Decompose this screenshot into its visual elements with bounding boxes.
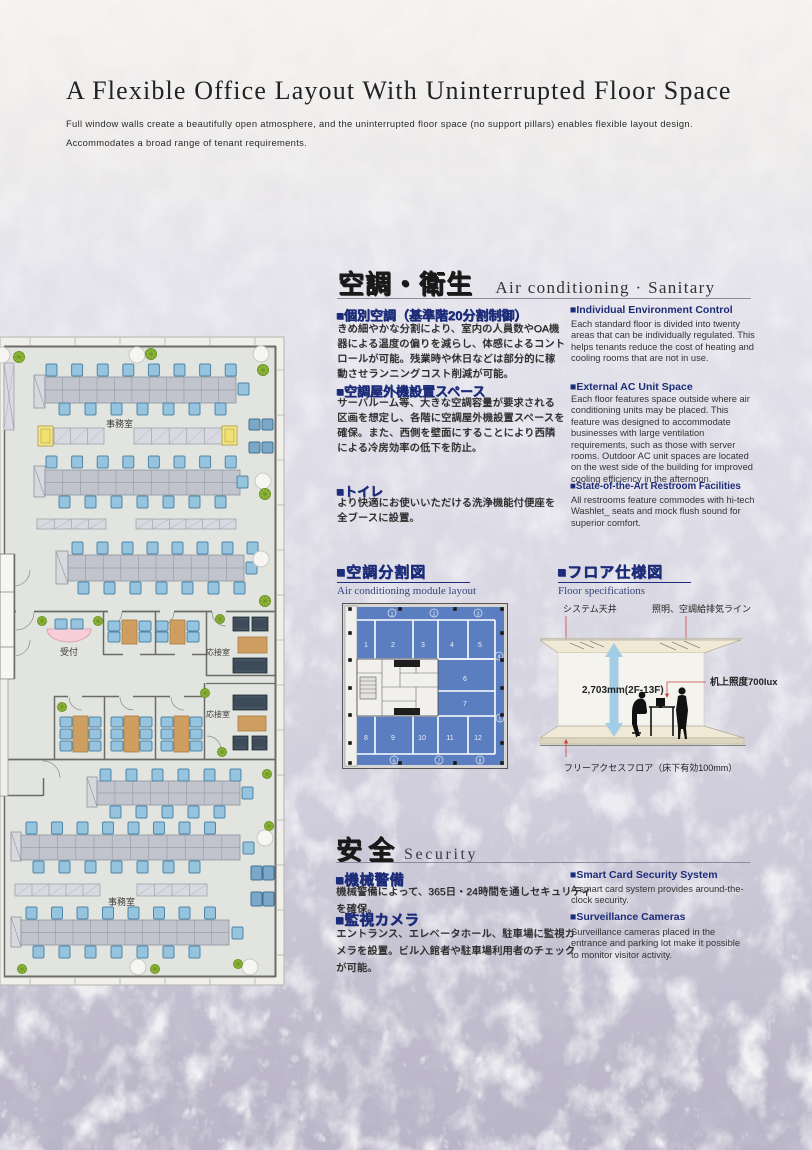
svg-text:机上照度700lux: 机上照度700lux: [710, 676, 778, 688]
svg-text:応接室: 応接室: [206, 647, 230, 657]
svg-text:事務室: 事務室: [108, 896, 135, 907]
svg-text:フリーアクセスフロア（床下有効100mm）: フリーアクセスフロア（床下有効100mm）: [564, 762, 737, 773]
svg-text:2,703mm(2F-13F): 2,703mm(2F-13F): [582, 685, 664, 696]
svg-text:システム天井: システム天井: [563, 603, 617, 614]
svg-text:6: 6: [463, 676, 467, 683]
svg-text:5: 5: [478, 642, 482, 649]
svg-text:7: 7: [437, 758, 440, 764]
svg-text:受付: 受付: [60, 646, 78, 657]
svg-text:2: 2: [432, 611, 435, 617]
svg-text:3: 3: [421, 642, 425, 649]
svg-text:11: 11: [446, 735, 453, 742]
svg-text:9: 9: [391, 735, 395, 742]
svg-text:8: 8: [478, 758, 481, 764]
svg-text:4: 4: [450, 642, 454, 649]
svg-text:事務室: 事務室: [106, 418, 133, 429]
svg-text:12: 12: [474, 735, 482, 742]
svg-text:6: 6: [392, 758, 395, 764]
svg-text:応接室: 応接室: [206, 709, 230, 719]
svg-text:4: 4: [497, 654, 500, 660]
svg-text:3: 3: [476, 611, 479, 617]
svg-text:2: 2: [391, 642, 395, 649]
svg-text:照明、空調給排気ライン: 照明、空調給排気ライン: [652, 603, 751, 614]
svg-text:8: 8: [364, 735, 368, 742]
svg-text:7: 7: [463, 701, 467, 708]
svg-text:10: 10: [418, 735, 426, 742]
svg-text:1: 1: [390, 611, 393, 617]
svg-text:5: 5: [498, 716, 501, 722]
svg-text:1: 1: [364, 642, 368, 649]
